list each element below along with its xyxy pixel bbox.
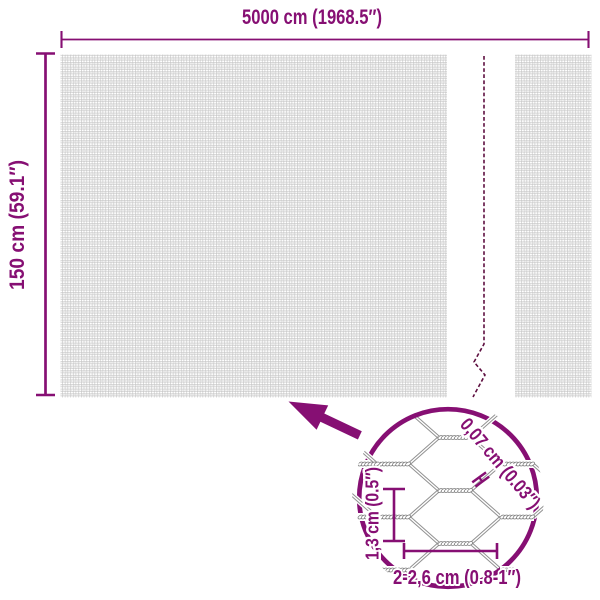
- svg-text:150 cm (59.1″): 150 cm (59.1″): [6, 160, 29, 290]
- svg-text:1,3 cm (0.5″): 1,3 cm (0.5″): [363, 467, 383, 560]
- svg-text:2-2,6 cm (0.8-1″): 2-2,6 cm (0.8-1″): [393, 567, 521, 589]
- svg-text:5000 cm (1968.5″): 5000 cm (1968.5″): [242, 6, 382, 29]
